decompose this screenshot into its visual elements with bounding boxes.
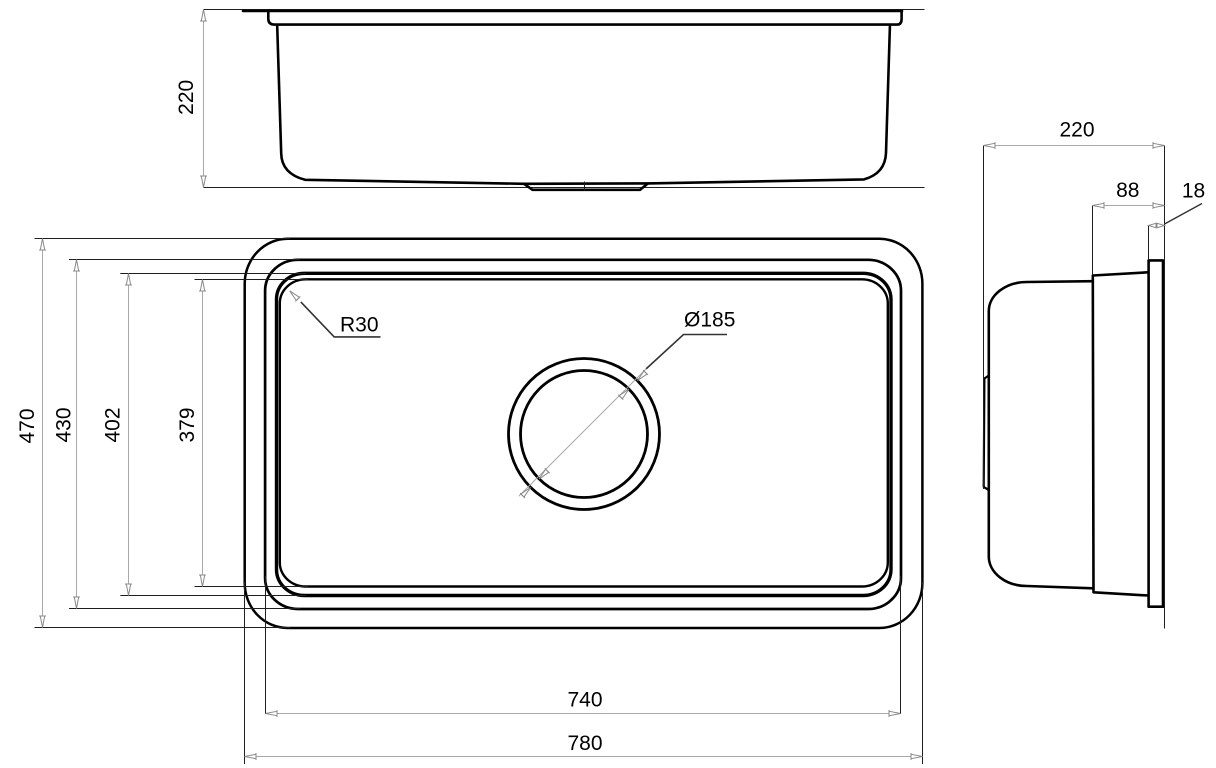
svg-text:220: 220 [175, 80, 198, 115]
svg-text:Ø185: Ø185 [684, 309, 735, 332]
svg-text:220: 220 [1059, 119, 1094, 142]
svg-text:430: 430 [53, 407, 76, 442]
svg-text:18: 18 [1182, 180, 1205, 203]
svg-text:780: 780 [567, 732, 602, 755]
svg-text:R30: R30 [340, 314, 379, 337]
svg-text:470: 470 [16, 408, 39, 443]
svg-text:402: 402 [102, 407, 125, 442]
svg-text:379: 379 [176, 407, 199, 442]
svg-text:88: 88 [1116, 179, 1139, 202]
svg-text:740: 740 [567, 689, 602, 712]
